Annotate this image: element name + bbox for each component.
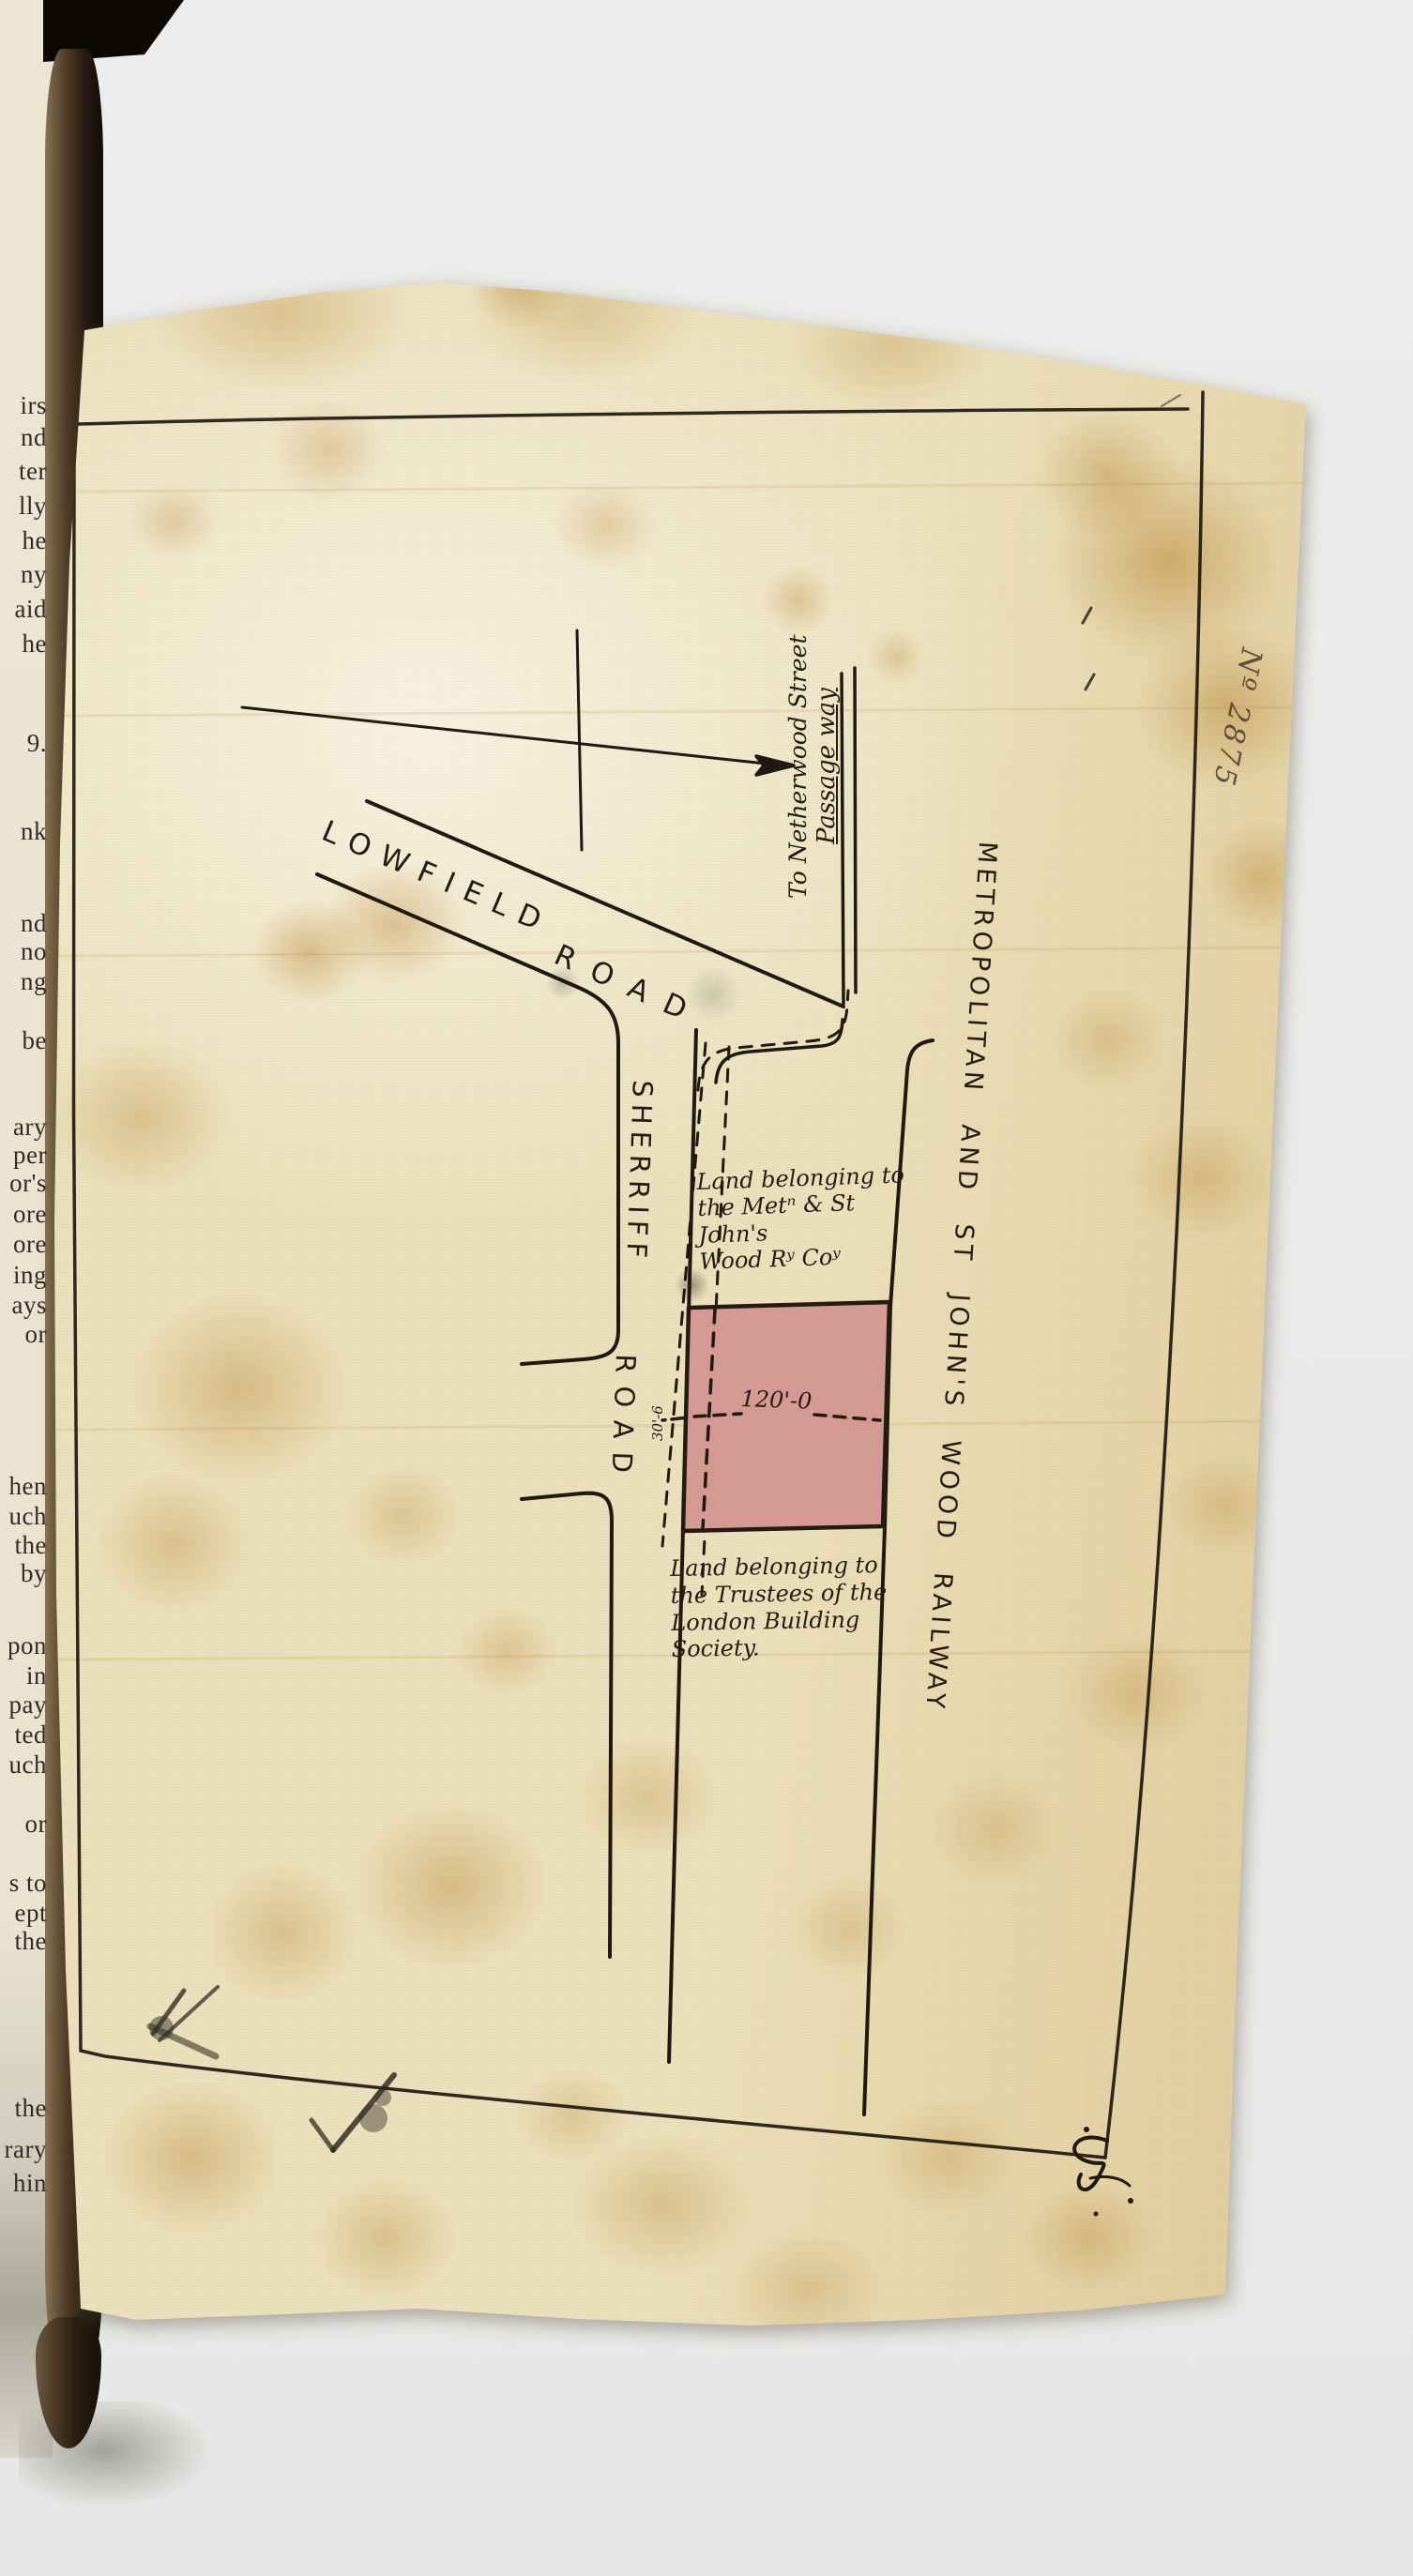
plan-sheet: LOWFIELD ROAD SHERRIFF ROAD METROPOLITAN… (0, 0, 1413, 2576)
plan-sheet-wrap: LOWFIELD ROAD SHERRIFF ROAD METROPOLITAN… (0, 0, 1413, 2576)
canvas-texture (0, 0, 1413, 2576)
photograph-of-plan: { "plan": { "number": "Nº 2875", "passag… (0, 0, 1413, 2576)
